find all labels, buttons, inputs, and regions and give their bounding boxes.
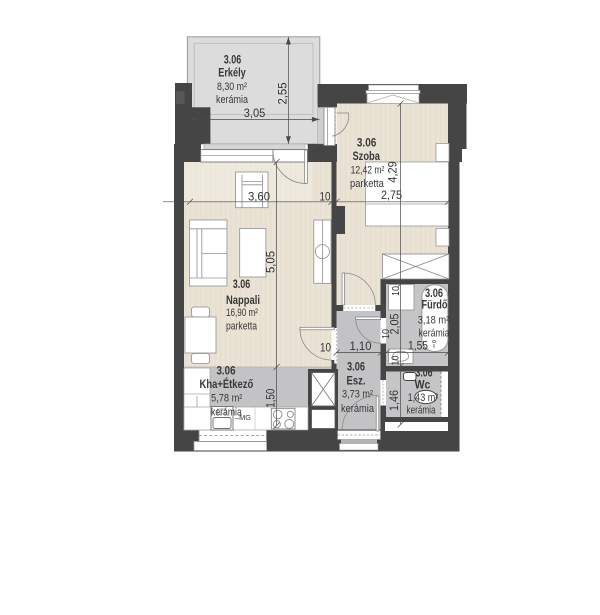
svg-text:1,43 m²: 1,43 m² <box>408 392 439 404</box>
svg-text:3,73 m²: 3,73 m² <box>342 389 373 401</box>
svg-text:Wc: Wc <box>415 379 431 391</box>
svg-text:kerámia: kerámia <box>211 407 242 419</box>
svg-text:Kha+Étkező: Kha+Étkező <box>200 378 254 391</box>
svg-text:parketta: parketta <box>350 178 385 190</box>
svg-text:1,50: 1,50 <box>264 388 278 407</box>
svg-text:3.06: 3.06 <box>357 138 376 150</box>
svg-text:1,55: 1,55 <box>408 339 428 353</box>
svg-text:3.06: 3.06 <box>233 279 251 291</box>
svg-text:3,05: 3,05 <box>244 106 266 120</box>
svg-text:3.06: 3.06 <box>224 55 242 67</box>
svg-text:5,05: 5,05 <box>264 251 278 273</box>
svg-text:5,78 m²: 5,78 m² <box>211 393 243 405</box>
svg-text:Esz.: Esz. <box>347 376 366 388</box>
svg-text:3.06: 3.06 <box>347 362 365 374</box>
svg-text:10: 10 <box>391 355 402 365</box>
svg-text:1,46: 1,46 <box>387 390 401 411</box>
svg-text:10: 10 <box>381 329 392 339</box>
svg-text:10: 10 <box>391 286 402 296</box>
svg-text:4,29: 4,29 <box>386 161 400 183</box>
svg-text:Erkély: Erkély <box>218 68 246 80</box>
svg-text:2,55: 2,55 <box>276 82 290 104</box>
svg-text:2,75: 2,75 <box>381 188 402 202</box>
svg-text:10: 10 <box>320 190 331 204</box>
svg-text:3,18 m²: 3,18 m² <box>418 315 450 327</box>
svg-text:1,10: 1,10 <box>350 339 372 353</box>
svg-text:3.06: 3.06 <box>425 288 443 300</box>
svg-text:parketta: parketta <box>226 321 258 333</box>
svg-text:12,42 m²: 12,42 m² <box>351 165 385 177</box>
svg-text:3.06: 3.06 <box>217 366 236 378</box>
svg-text:10: 10 <box>320 341 331 355</box>
svg-text:3,60: 3,60 <box>248 190 270 204</box>
svg-text:16,90 m²: 16,90 m² <box>226 307 258 319</box>
svg-text:Nappali: Nappali <box>226 295 260 307</box>
svg-text:kerámia: kerámia <box>407 405 437 417</box>
svg-text:kerámia: kerámia <box>341 403 375 415</box>
svg-text:Fürdő: Fürdő <box>422 300 448 312</box>
svg-text:Szoba: Szoba <box>352 151 380 163</box>
svg-text:8,30 m²: 8,30 m² <box>217 81 247 93</box>
svg-text:kerámia: kerámia <box>216 94 249 106</box>
